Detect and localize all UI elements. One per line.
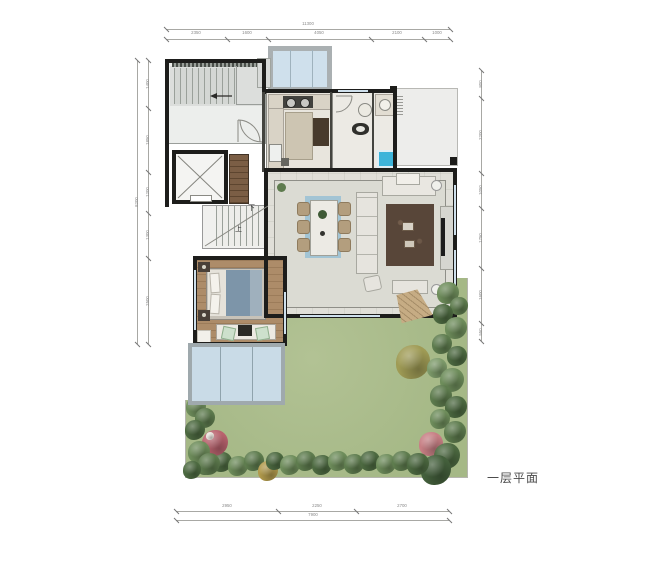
courtyard-mullion <box>252 347 253 401</box>
courtyard-mullion <box>220 347 221 401</box>
glass-courtyard <box>188 343 285 405</box>
plan-linework <box>0 0 660 575</box>
floor-plan-canvas: 1130023501600405021001000295022502700790… <box>0 0 660 575</box>
plan-title-label: 一层平面 <box>487 469 539 486</box>
